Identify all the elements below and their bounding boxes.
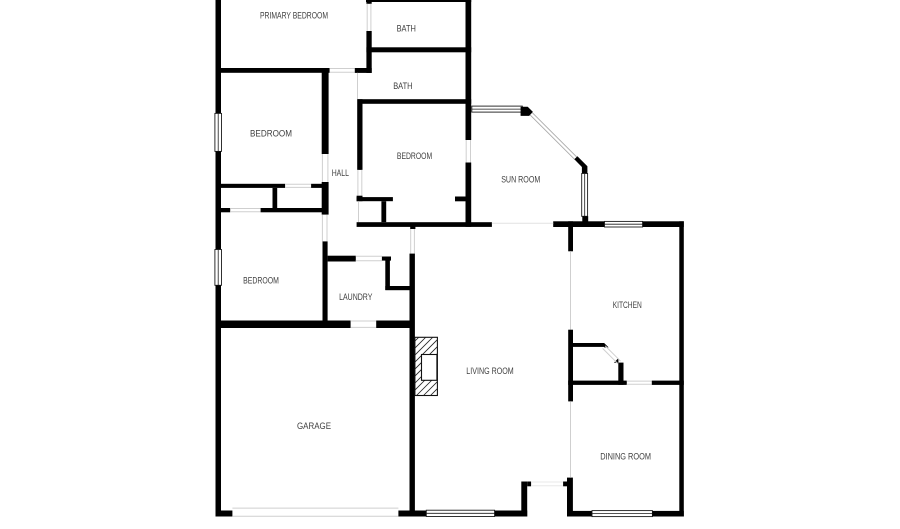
svg-text:LIVING ROOM: LIVING ROOM <box>466 366 513 376</box>
svg-text:KITCHEN: KITCHEN <box>613 300 642 310</box>
svg-text:BEDROOM: BEDROOM <box>250 129 292 139</box>
svg-text:BATH: BATH <box>393 81 412 91</box>
svg-text:BEDROOM: BEDROOM <box>243 276 279 286</box>
svg-text:DINING ROOM: DINING ROOM <box>600 452 651 462</box>
svg-text:SUN ROOM: SUN ROOM <box>501 175 540 185</box>
svg-text:BATH: BATH <box>397 24 416 34</box>
svg-text:GARAGE: GARAGE <box>297 421 331 431</box>
svg-text:BEDROOM: BEDROOM <box>397 151 432 161</box>
svg-text:HALL: HALL <box>332 168 349 178</box>
svg-text:PRIMARY BEDROOM: PRIMARY BEDROOM <box>260 10 328 20</box>
svg-text:LAUNDRY: LAUNDRY <box>339 292 372 302</box>
